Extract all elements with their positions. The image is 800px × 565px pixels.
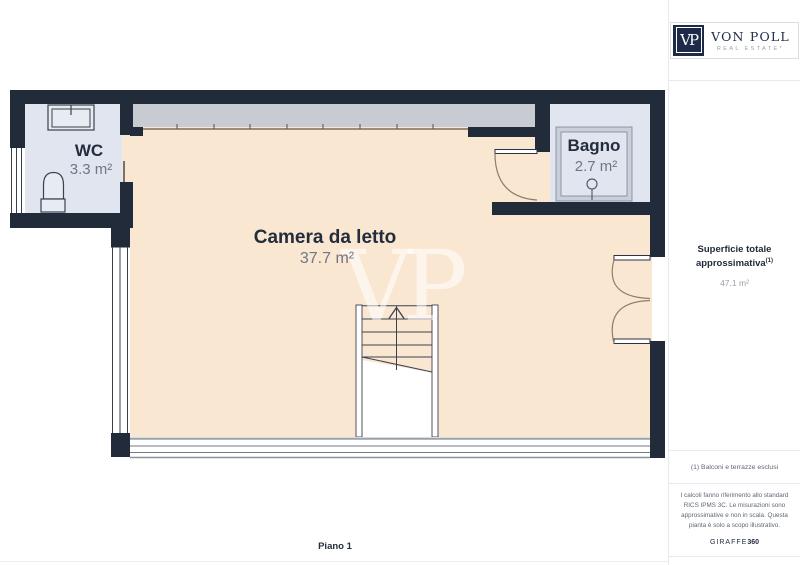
bottom-window — [130, 437, 650, 458]
wc-toilet — [41, 173, 65, 213]
bedroom-label: Camera da letto — [254, 227, 397, 248]
total-area-footnote-marker: (1) — [766, 258, 773, 264]
vonpoll-logo: VP VON POLL REAL ESTATE* — [670, 22, 799, 59]
logo-cell: VP VON POLL REAL ESTATE* — [669, 0, 800, 81]
disclaimer-cell: I calcoli fanno riferimento allo standar… — [669, 484, 800, 557]
brand-tagline: REAL ESTATE* — [711, 46, 790, 52]
giraffe360-credit: GIRAFFE360 — [678, 537, 791, 548]
disclaimer-text: I calcoli fanno riferimento allo standar… — [681, 492, 789, 529]
total-area-cell: Superficie totale approssimativa(1) 47.1… — [669, 81, 800, 451]
vp-monogram-icon: VP — [673, 25, 704, 56]
info-sidebar: VP VON POLL REAL ESTATE* Superficie tota… — [668, 0, 800, 565]
top-glazing-band — [133, 104, 535, 129]
floor-label: Piano 1 — [0, 541, 670, 552]
wc-room-label: WC — [75, 141, 103, 160]
wc-room-area: 3.3 m² — [70, 161, 113, 178]
left-window — [111, 245, 130, 433]
wc-window — [10, 148, 25, 213]
total-area-label-line2: approssimativa — [696, 259, 766, 270]
brand-text: VON POLL REAL ESTATE* — [711, 29, 790, 52]
bathroom-label: Bagno — [568, 136, 621, 155]
wc-sink — [48, 105, 94, 130]
vp-monogram-text: VP — [680, 31, 697, 49]
footnote: (1) Balconi e terrazze esclusi — [669, 451, 800, 484]
bedroom-area: 37.7 m² — [300, 250, 355, 267]
credit-prefix: GIRAFFE — [710, 539, 747, 546]
bathroom-area: 2.7 m² — [575, 158, 618, 175]
brand-name: VON POLL — [711, 29, 790, 44]
floorplan-page: VP WC 3.3 m² Camera da letto 37.7 m² Bag… — [0, 0, 800, 565]
total-area-label-line1: Superficie totale — [698, 244, 772, 255]
total-area-value: 47.1 m² — [720, 278, 749, 288]
credit-suffix: 360 — [747, 539, 759, 546]
total-area-label: Superficie totale approssimativa(1) — [696, 243, 773, 273]
